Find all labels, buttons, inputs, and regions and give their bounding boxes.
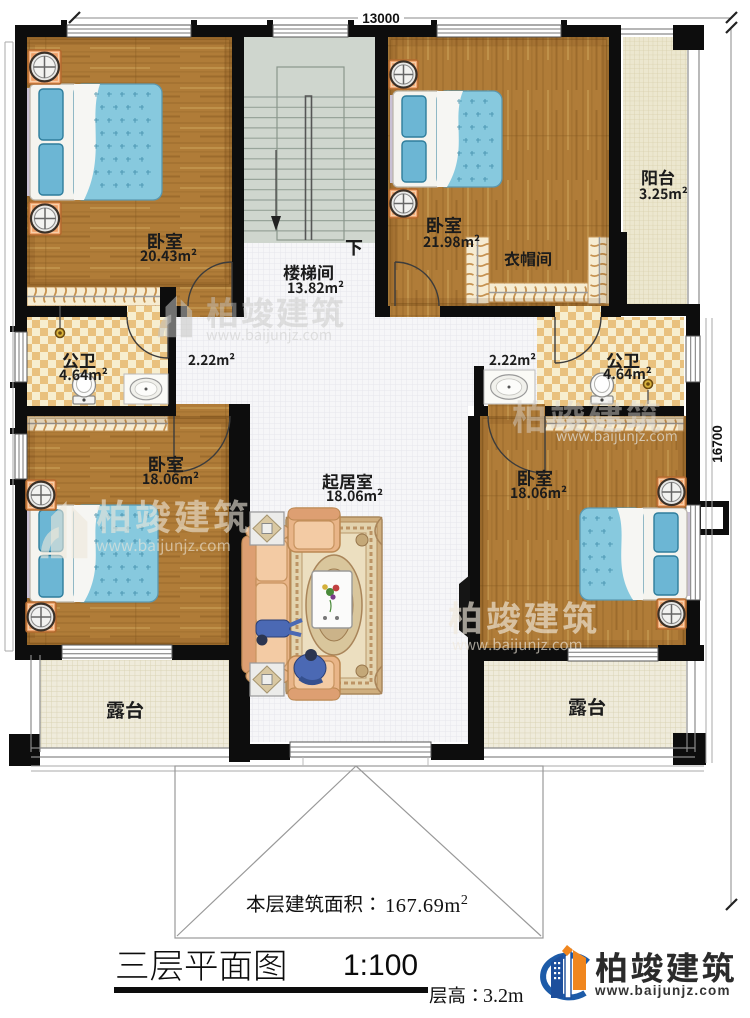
svg-text:13000: 13000 <box>362 11 400 26</box>
svg-text:16700: 16700 <box>710 425 725 463</box>
svg-text:167.69m2: 167.69m2 <box>385 893 468 917</box>
svg-text:1:100: 1:100 <box>343 949 418 982</box>
svg-text:3.2m: 3.2m <box>483 985 524 1007</box>
svg-text:www.baijunjz.com: www.baijunjz.com <box>594 983 731 998</box>
